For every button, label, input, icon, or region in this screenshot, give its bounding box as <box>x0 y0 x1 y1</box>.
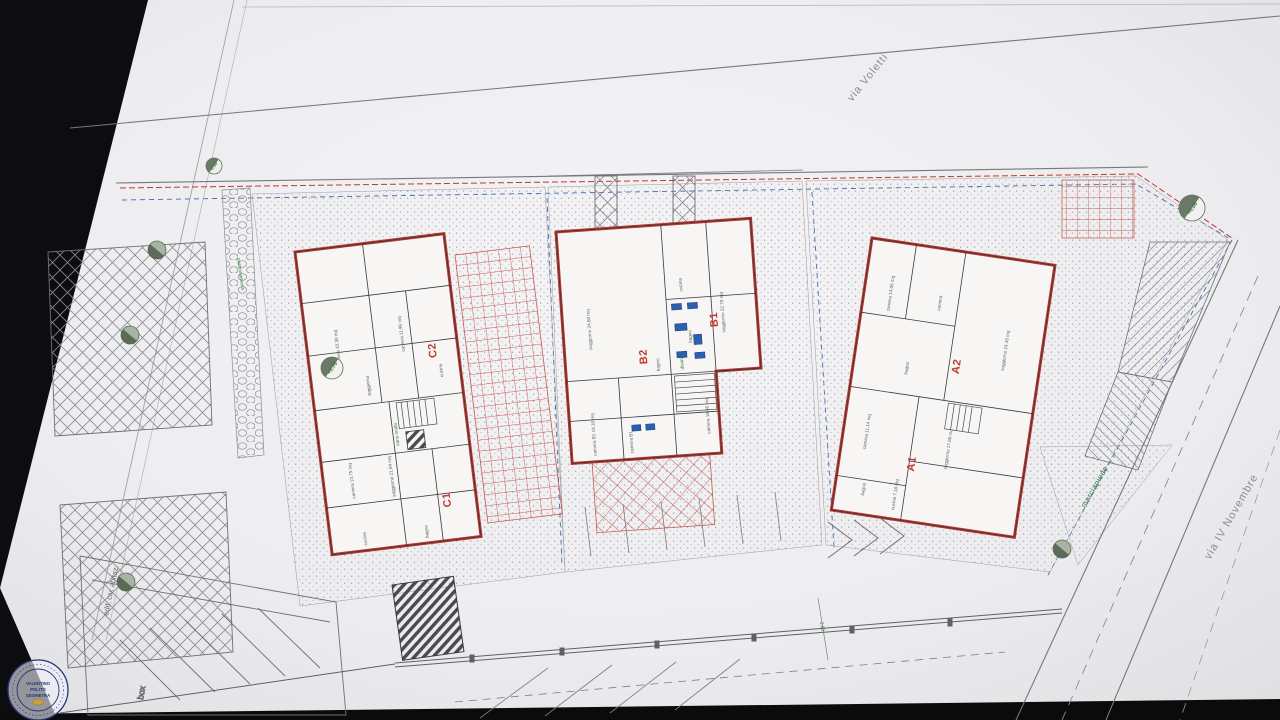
site-plan-photo: via Voletti camminamento <box>0 0 1280 720</box>
unit-label-c1: C1 <box>440 492 454 508</box>
surveyor-stamp: VALENTINO POLITO GEOMETRA <box>8 660 68 720</box>
unit-label-c2: C2 <box>426 342 440 358</box>
building-a: A2 A1 soggiorno 24.45 mq camera 14.05 mq… <box>831 238 1055 537</box>
unit-label-a1: A1 <box>905 456 919 473</box>
room-label: cucina <box>677 278 683 292</box>
unit-label-b1: B1 <box>708 312 721 328</box>
pergola-a <box>1062 180 1134 238</box>
room-label: bagno <box>655 358 661 372</box>
unit-label-a2: A2 <box>950 358 964 375</box>
elevator-grate-c <box>406 430 426 450</box>
stamp-name-line1: VALENTINO <box>26 681 51 686</box>
site-plan-drawing: via Voletti camminamento <box>0 0 1280 720</box>
disimp-label: disimp. <box>679 354 686 370</box>
room-label: bagno <box>687 330 693 344</box>
stamp-name-line3: GEOMETRA <box>26 693 50 698</box>
stamp-name-line2: POLITO <box>30 687 46 692</box>
ramp-grate <box>392 576 464 660</box>
unit-label-b2: B2 <box>637 349 650 365</box>
